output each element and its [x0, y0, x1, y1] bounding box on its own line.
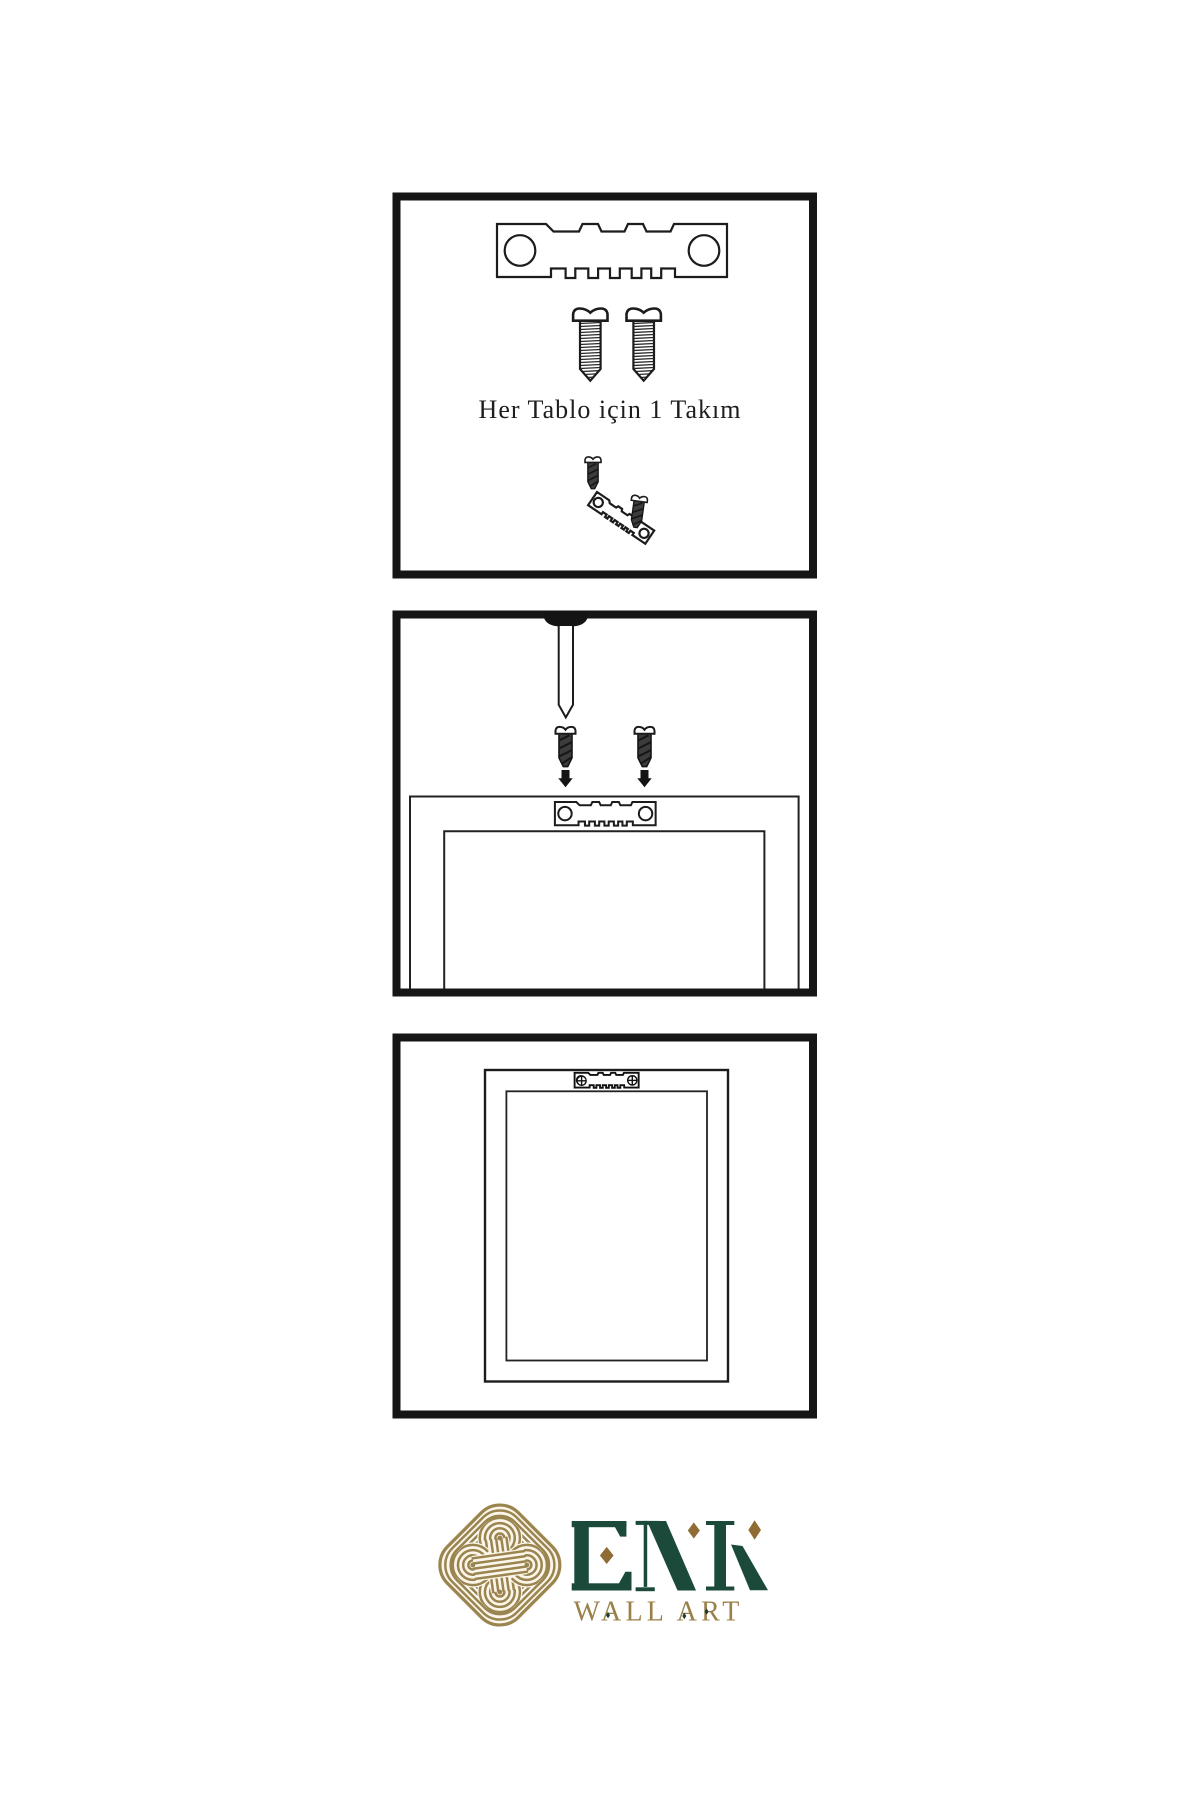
svg-text:WALL ART: WALL ART — [574, 1596, 744, 1627]
svg-text:Her Tablo için 1 Takım: Her Tablo için 1 Takım — [479, 395, 742, 424]
